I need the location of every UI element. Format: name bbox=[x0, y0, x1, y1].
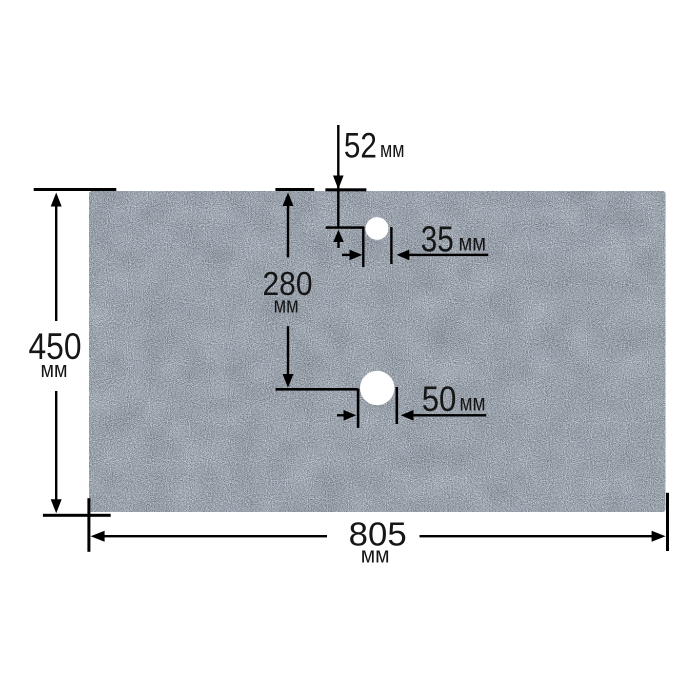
svg-text:35: 35 bbox=[421, 218, 454, 259]
svg-text:мм: мм bbox=[380, 137, 405, 162]
svg-text:мм: мм bbox=[274, 292, 299, 317]
svg-text:мм: мм bbox=[458, 230, 486, 256]
svg-text:52: 52 bbox=[344, 126, 377, 165]
svg-text:50: 50 bbox=[422, 379, 457, 419]
svg-text:мм: мм bbox=[41, 357, 68, 382]
svg-text:мм: мм bbox=[361, 543, 390, 568]
svg-text:мм: мм bbox=[460, 389, 486, 415]
